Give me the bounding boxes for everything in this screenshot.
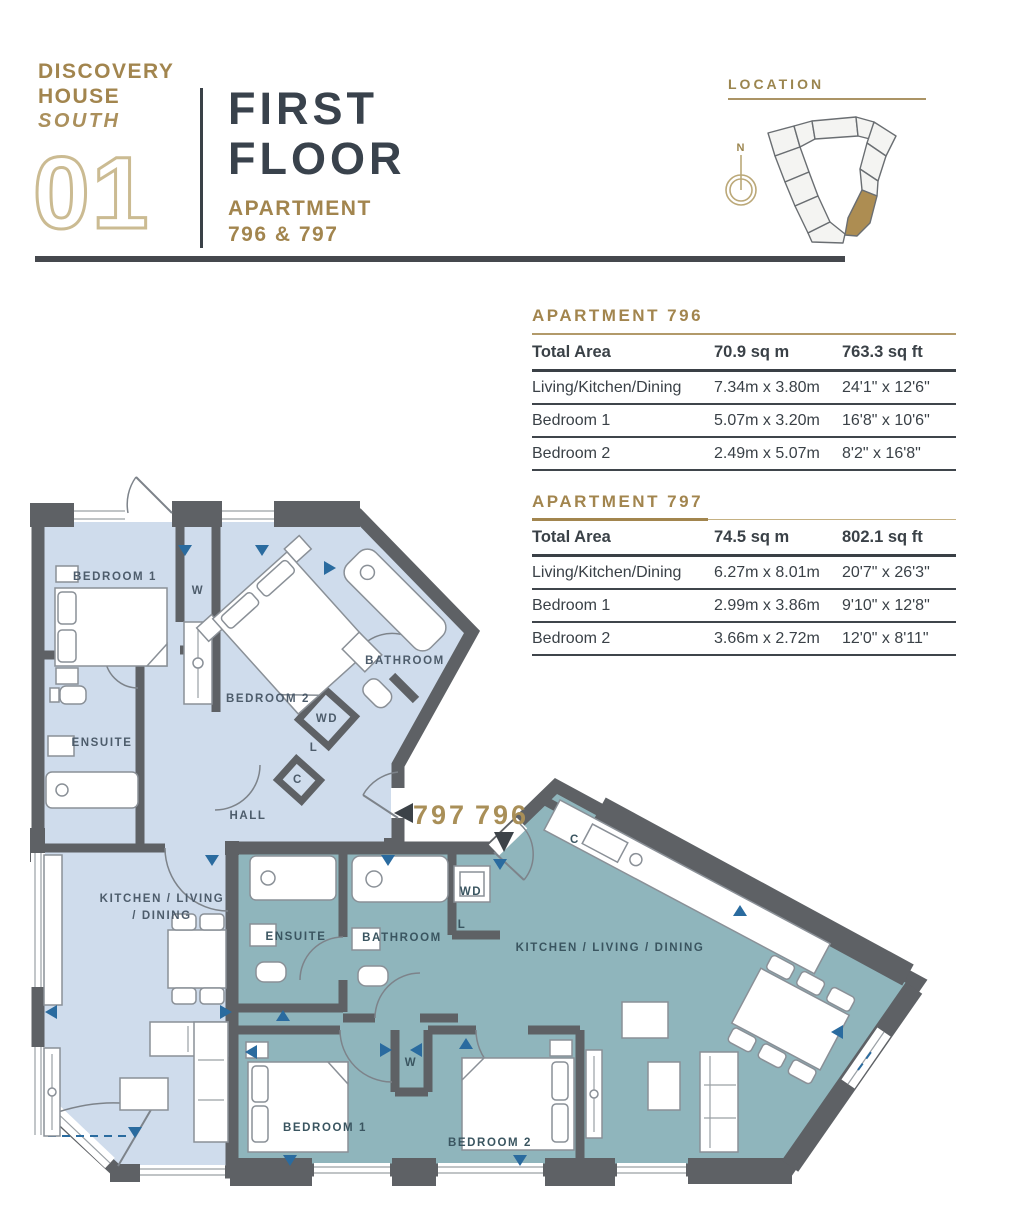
apartment-797-number: 797 — [413, 800, 467, 830]
room-label-bathroom: BATHROOM — [365, 655, 445, 667]
room-label-ensuite: ENSUITE — [71, 737, 132, 749]
room-label-bedroom1: BEDROOM 1 — [283, 1122, 367, 1134]
room-label-kitchen-line1: KITCHEN / LIVING — [100, 893, 225, 905]
room-label-wardrobe: W — [192, 585, 204, 597]
room-label-cupboard: C — [293, 774, 303, 786]
apartment-796-number: 796 — [475, 800, 529, 830]
room-label-linen: L — [310, 742, 319, 754]
room-label-wd: WD — [460, 886, 482, 898]
room-label-bedroom2: BEDROOM 2 — [226, 693, 310, 705]
room-label-bedroom2: BEDROOM 2 — [448, 1137, 532, 1149]
room-label-bedroom1: BEDROOM 1 — [73, 571, 157, 583]
room-label-wd: WD — [316, 713, 338, 725]
room-label-hall: HALL — [229, 810, 266, 822]
room-label-bathroom: BATHROOM — [362, 932, 442, 944]
room-label-kitchen-line2: / DINING — [132, 910, 191, 922]
room-label-ensuite: ENSUITE — [265, 931, 326, 943]
room-label-linen: L — [458, 919, 467, 931]
room-label-wardrobe: W — [405, 1057, 417, 1069]
room-label-kitchen: KITCHEN / LIVING / DINING — [516, 942, 705, 954]
floor-plan: BEDROOM 1 W BEDROOM 2 BATHROOM ENSUITE H… — [0, 0, 1020, 1210]
brochure-page: DISCOVERY HOUSE SOUTH 01 FIRST FLOOR APA… — [0, 0, 1020, 1210]
room-label-cupboard: C — [570, 834, 580, 846]
